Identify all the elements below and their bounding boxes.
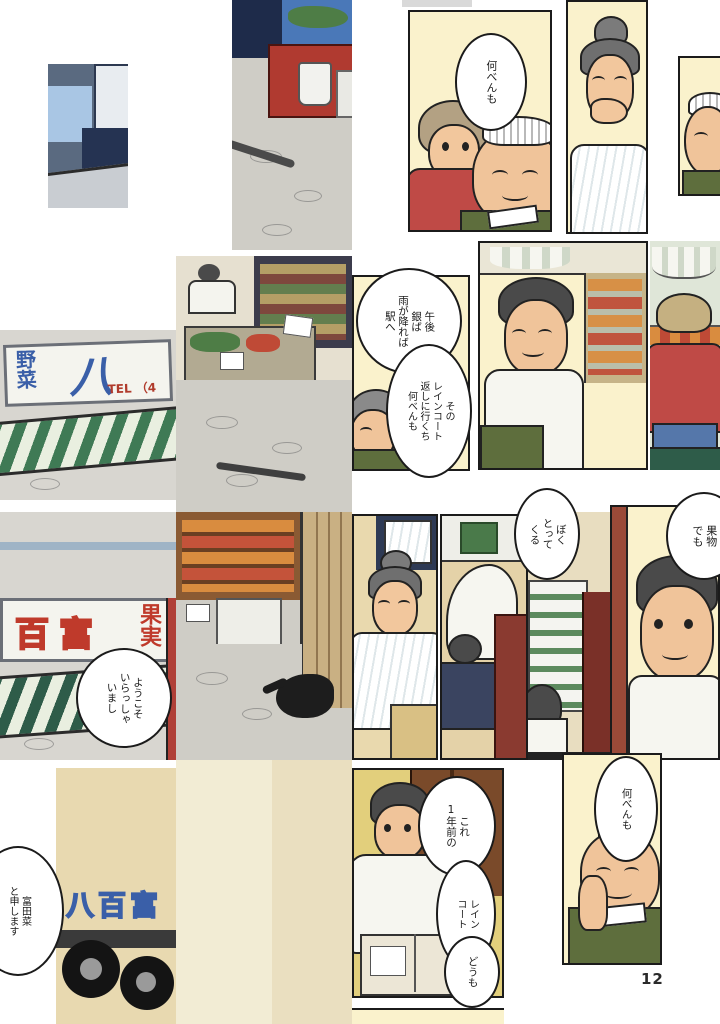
roof-slab xyxy=(48,162,128,208)
oldman-face-partial xyxy=(684,106,720,176)
wall-lines xyxy=(0,542,176,550)
sign-tel-text: TEL （4 xyxy=(107,379,156,398)
window-frame xyxy=(94,64,128,138)
man-face xyxy=(640,585,714,681)
oldman-closed-eye xyxy=(492,170,508,180)
awning-green-white xyxy=(0,406,176,477)
parcel-label xyxy=(370,946,406,976)
street-rain xyxy=(176,380,352,512)
oldman-vest-partial xyxy=(682,170,720,196)
wrapped-package xyxy=(390,704,438,760)
cobble-mark xyxy=(30,478,60,490)
tile-shop-rain xyxy=(232,0,352,250)
cobble-mark xyxy=(262,224,292,236)
man-smile xyxy=(662,649,688,660)
produce-reds xyxy=(246,334,280,352)
fruit-rows xyxy=(182,520,294,592)
woman-kimono xyxy=(570,144,648,234)
speech-bubble: 何べんも xyxy=(594,756,658,862)
price-tag xyxy=(220,352,244,370)
speech-bubble: その レインコート 返しに行くち 何べんも xyxy=(386,344,472,478)
oldman-closed-eye xyxy=(694,132,708,141)
green-box xyxy=(460,522,498,554)
grandma-face xyxy=(372,580,418,636)
tile-oldman-face-sliver xyxy=(678,56,720,196)
tile-shop-boy xyxy=(650,241,720,470)
oldman-smile xyxy=(604,887,632,899)
tile-top-sliver xyxy=(402,0,472,7)
tile-sign-yasai: 野菜 八 TEL （4 xyxy=(0,330,176,500)
grandma-closed-eye xyxy=(398,600,410,608)
cobble-mark xyxy=(206,416,238,429)
boy-red-polo xyxy=(650,343,720,433)
sign-kajitsu-text: 果実 xyxy=(137,603,159,647)
white-crate xyxy=(216,598,282,648)
boy-eye xyxy=(462,142,469,151)
man-shirt xyxy=(628,675,720,760)
man-hair-low xyxy=(448,634,482,664)
father-smile xyxy=(522,347,544,357)
green-crate xyxy=(650,447,720,470)
father-closed-eye xyxy=(512,329,526,338)
speech-bubble: 富田菜 と申します xyxy=(0,846,64,976)
truck-wheel-hub xyxy=(136,972,156,992)
man-eye xyxy=(654,619,663,629)
tarp-shade xyxy=(272,760,352,1024)
cobble-mark xyxy=(294,190,322,202)
page-number: 12 xyxy=(641,970,664,988)
truck-emblem-text: 八百富 xyxy=(66,884,162,924)
oldman-closed-eye xyxy=(522,170,538,180)
speech-bubble: ぼく とって くる xyxy=(514,488,580,580)
raised-hand xyxy=(578,875,608,931)
tile-tarp xyxy=(176,760,352,1024)
cobble-mark xyxy=(242,708,272,720)
dark-streak xyxy=(232,139,296,168)
panel-woman-bun xyxy=(566,0,648,234)
parcel-string xyxy=(414,934,416,992)
speech-bubble: どうも xyxy=(444,936,500,1008)
speech-bubble: ようこそ いらっしゃ いまし xyxy=(76,648,172,748)
sign-yasai-text: 野菜 xyxy=(14,349,35,390)
dark-red-cabinet xyxy=(582,592,610,760)
father-apron xyxy=(480,425,544,470)
signboard-yasai: 野菜 八 TEL （4 xyxy=(3,339,173,407)
father-closed-eye xyxy=(538,329,552,338)
plant-leaves xyxy=(288,6,348,28)
cobble-mark xyxy=(24,738,54,750)
tile-bottom-sliver xyxy=(352,1008,504,1024)
man-eye xyxy=(384,824,391,832)
grandma-closed-eye xyxy=(360,427,372,435)
hanging-bags xyxy=(652,247,716,279)
tile-building xyxy=(48,64,128,208)
man-eye xyxy=(684,619,693,629)
red-chair xyxy=(494,614,528,760)
price-tag xyxy=(186,604,210,622)
price-tag xyxy=(283,314,314,338)
panel-father-shop xyxy=(478,241,648,470)
tile-market-street xyxy=(176,512,352,760)
tile-market-register xyxy=(176,256,352,512)
oldman-smile xyxy=(502,190,528,201)
woman-closed-eye xyxy=(592,76,605,85)
woman-closed-eye xyxy=(614,76,627,85)
truck-wheel-hub xyxy=(80,958,102,980)
white-bucket xyxy=(298,62,332,106)
hanging-bags xyxy=(490,247,570,269)
panel-grandma-package xyxy=(352,514,438,760)
signboard-kajitsu: 百富 果実 xyxy=(0,598,176,662)
boy-eye xyxy=(442,142,449,151)
oldman-closed-eye xyxy=(624,867,639,876)
cobble-mark xyxy=(196,672,228,685)
sign-hyakutomi-text: 百富 xyxy=(15,607,103,656)
speech-bubble: 何べんも xyxy=(455,33,527,131)
white-box xyxy=(336,70,352,118)
produce-greens xyxy=(190,332,240,352)
panel-man-bending xyxy=(440,514,528,760)
cobble-mark xyxy=(226,474,258,487)
woman-hand xyxy=(590,98,628,124)
man-eye xyxy=(404,824,411,832)
grandma-closed-eye xyxy=(378,600,390,608)
cobble-mark xyxy=(272,442,302,454)
boy-hair-blond xyxy=(656,293,712,333)
clerk-shirt xyxy=(188,280,236,314)
red-doorframe xyxy=(612,507,628,759)
manga-page-collage: 何べんも 野菜 八 TEL （4 xyxy=(0,0,720,1024)
tile-truck: 八百富 xyxy=(56,768,176,1024)
tile-tomita-sliver: 富田菜 と申します xyxy=(0,832,64,1024)
produce-dots xyxy=(588,279,642,375)
